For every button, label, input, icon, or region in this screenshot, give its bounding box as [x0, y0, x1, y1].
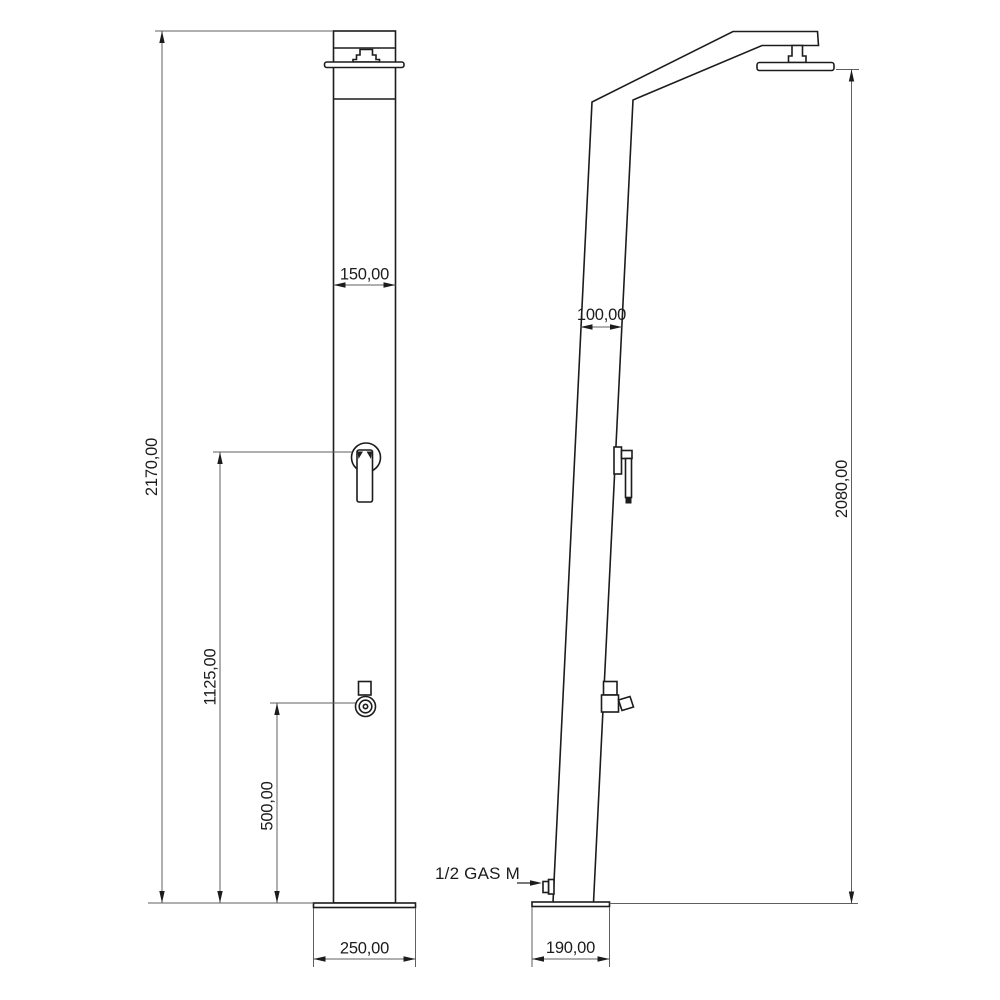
- arrow-up-icon: [849, 70, 854, 82]
- dim-base-depth-label: 190,00: [546, 939, 595, 957]
- drawing-canvas: 2170,00 1125,00 500,00 150,00: [0, 0, 1000, 1000]
- front-base-plate: [314, 903, 416, 908]
- arrow-up-icon: [274, 703, 279, 715]
- dim-head-height-label: 2080,00: [833, 460, 851, 518]
- dim-base-width-label: 250,00: [340, 940, 389, 958]
- arrow-down-icon: [849, 892, 854, 904]
- dim-base-width: 250,00: [314, 908, 416, 967]
- arrow-down-icon: [217, 891, 222, 903]
- arrow-down-icon: [274, 891, 279, 903]
- dim-total-height-label: 2170,00: [143, 438, 161, 496]
- side-inlet-fitting-nut: [543, 882, 549, 893]
- arrow-right-icon: [598, 956, 610, 961]
- side-view: [532, 32, 834, 907]
- side-mixer-lever-tip: [626, 498, 631, 504]
- side-tap-knob: [604, 682, 618, 696]
- arrow-down-icon: [159, 891, 164, 903]
- side-tap-body: [602, 695, 619, 712]
- side-mixer-lever-shaft: [626, 459, 632, 498]
- dim-total-height: 2170,00: [143, 31, 333, 903]
- dim-head-height: 2080,00: [833, 70, 859, 904]
- dim-base-depth: 190,00: [532, 907, 610, 967]
- arrow-up-icon: [217, 452, 222, 464]
- front-view: [314, 31, 416, 908]
- side-mixer-bracket: [614, 447, 622, 474]
- dim-column-width-label: 150,00: [340, 266, 389, 284]
- dim-mixer-height-label: 1125,00: [202, 648, 220, 705]
- arrow-right-icon: [404, 956, 416, 961]
- arrow-left-icon: [532, 956, 544, 961]
- side-base-plate: [532, 902, 610, 907]
- inlet-annotation: 1/2 GAS M: [435, 864, 542, 886]
- arrow-left-icon: [314, 956, 326, 961]
- arrow-up-icon: [159, 31, 164, 43]
- dim-tap-height-label: 500,00: [259, 781, 277, 830]
- arrow-right-icon: [530, 880, 542, 885]
- side-shower-head: [757, 63, 834, 71]
- side-inlet-fitting-body: [549, 880, 555, 895]
- front-collar-flange: [325, 62, 405, 68]
- front-mixer-lever: [357, 450, 373, 502]
- front-tap-knob: [359, 682, 372, 696]
- dimensions: 2170,00 1125,00 500,00 150,00: [143, 31, 859, 967]
- inlet-label: 1/2 GAS M: [435, 864, 520, 883]
- side-mixer-lever-knuckle: [622, 451, 633, 459]
- side-tap-spout: [619, 697, 634, 711]
- dim-column-depth-label: 100,00: [577, 306, 626, 324]
- technical-drawing: 2170,00 1125,00 500,00 150,00: [0, 0, 1000, 1000]
- side-shower-neck: [789, 46, 807, 63]
- side-column-outline: [553, 32, 819, 903]
